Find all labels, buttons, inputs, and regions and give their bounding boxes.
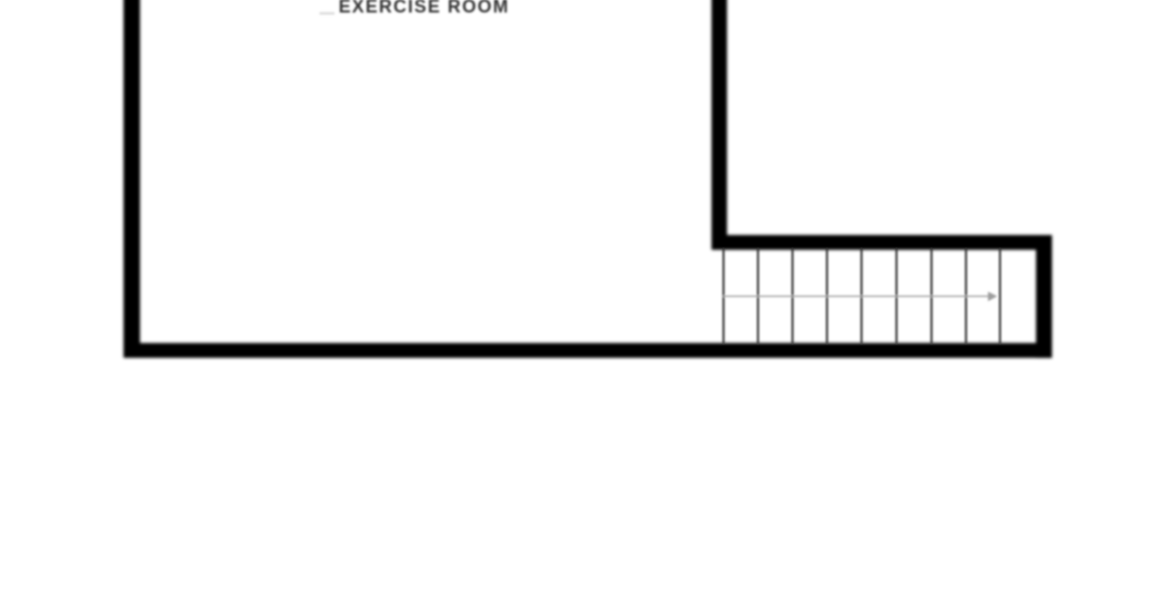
- svg-text:EXERCISE ROOM: EXERCISE ROOM: [339, 0, 510, 16]
